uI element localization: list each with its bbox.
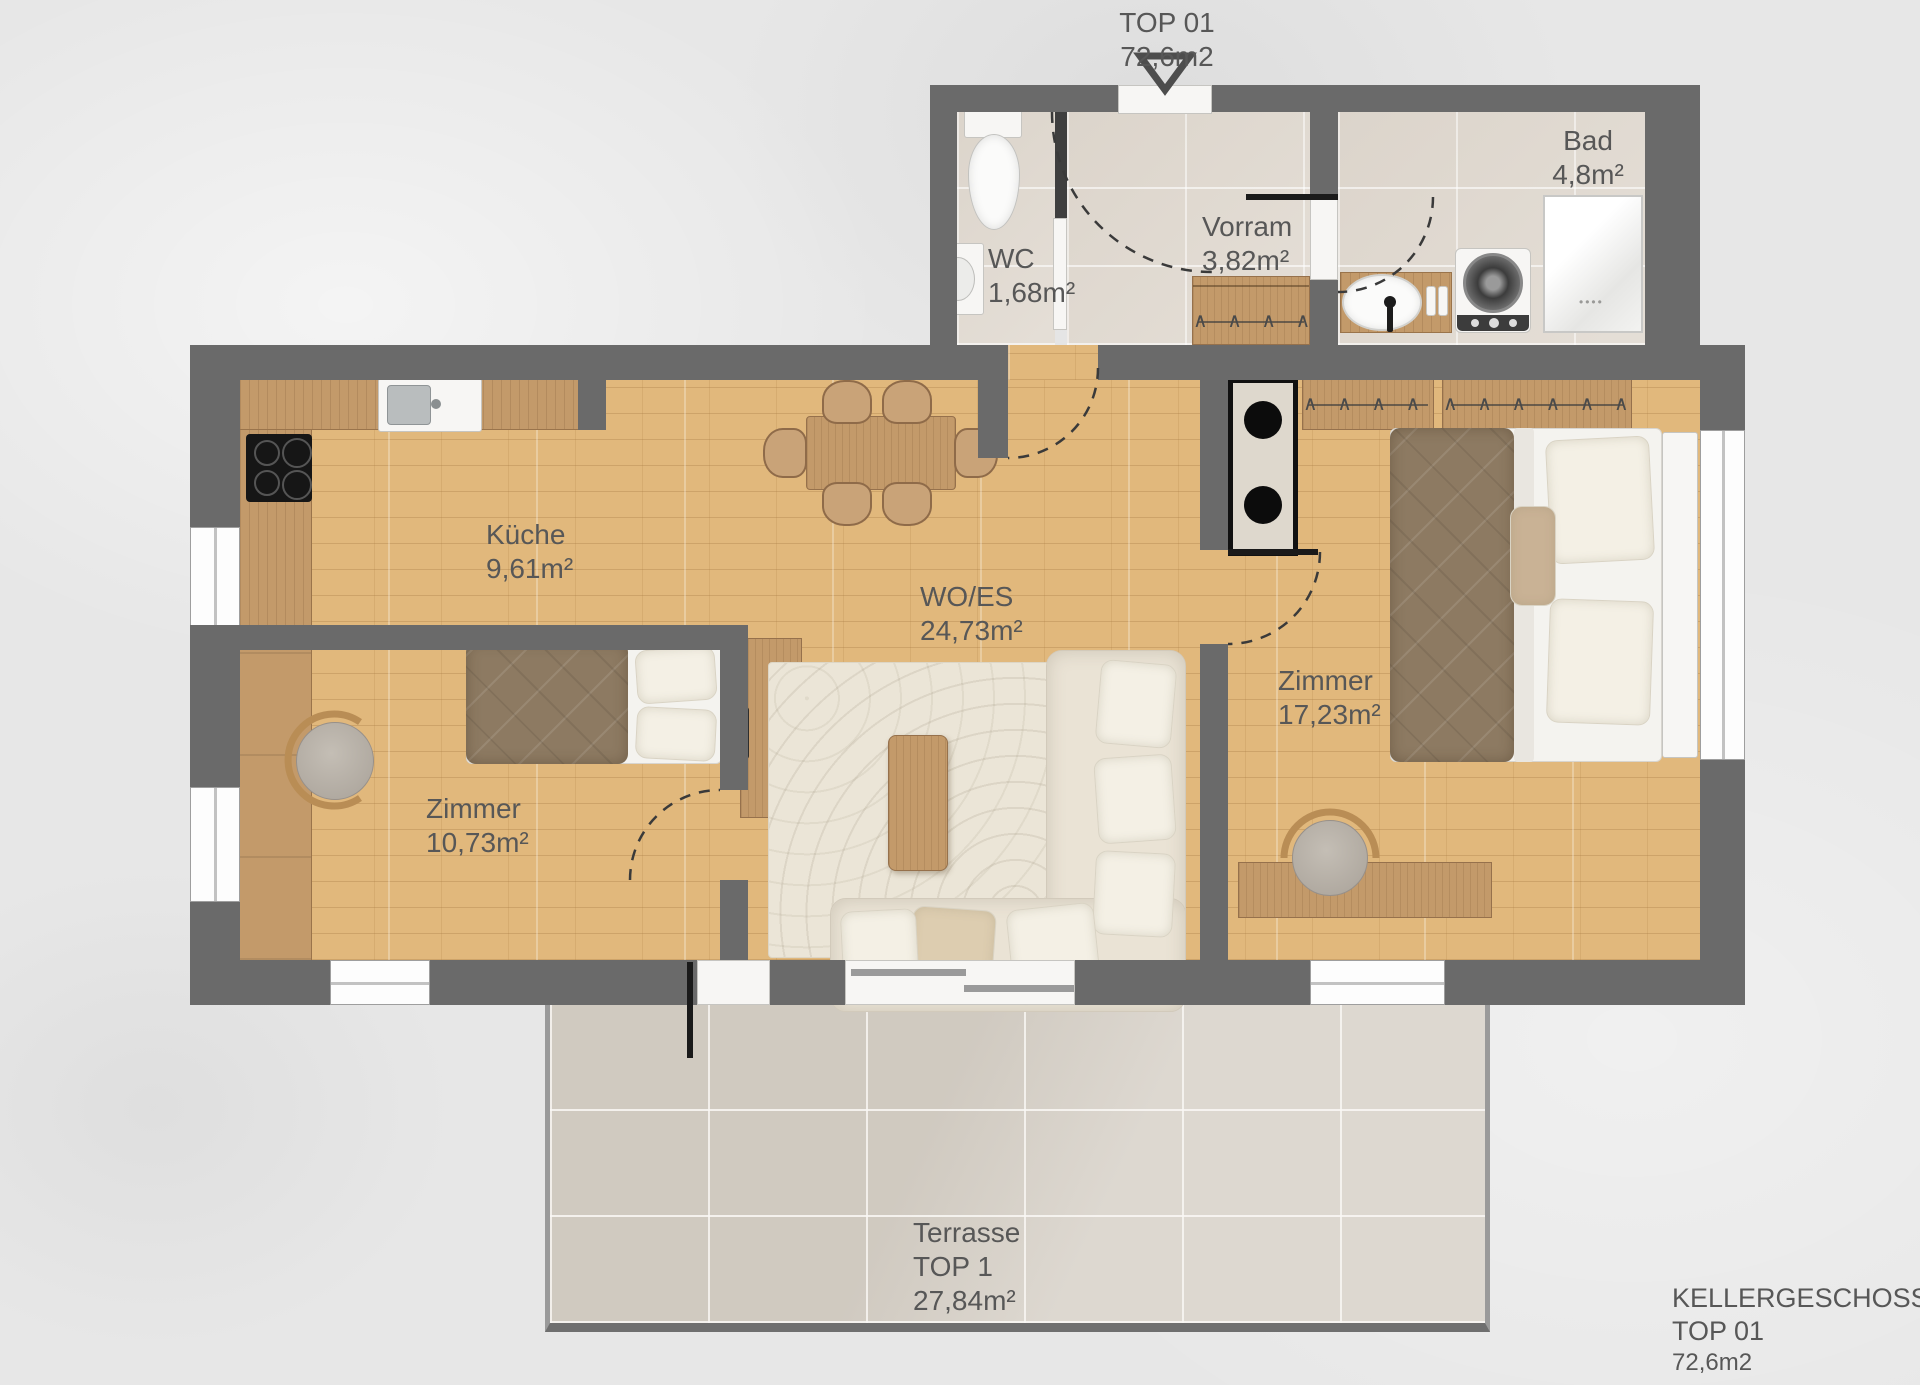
room-area: 17,23m² (1278, 698, 1381, 732)
room-label-terrasse: Terrasse TOP 1 27,84m² (913, 1216, 1020, 1318)
soap-dispenser-icon (1426, 286, 1436, 316)
room-name: WC (988, 242, 1075, 276)
plan-title-project: TOP 01 (1092, 6, 1242, 40)
room-area: 3,82m² (1202, 244, 1292, 278)
room-area: 1,68m² (988, 276, 1075, 310)
washer-panel (1457, 315, 1529, 331)
hanger-icons: ∧ ∧ ∧ ∧ (1193, 311, 1309, 331)
wall-segment (1212, 85, 1700, 112)
washing-machine (1455, 248, 1531, 333)
bedroom1-wardrobe: ∧ ∧ ∧ ∧ ∧ (1302, 378, 1434, 430)
wall-segment (1310, 280, 1338, 345)
coffee-table (888, 735, 948, 871)
plan-title: TOP 01 72,6m2 (1092, 6, 1242, 74)
room-name: Küche (486, 518, 573, 552)
sofa-pillow (1094, 659, 1177, 749)
wall-segment (720, 650, 748, 790)
window (330, 960, 430, 1005)
wall-segment (1445, 960, 1745, 1005)
dining-table (806, 416, 956, 490)
footer-line2: TOP 01 (1672, 1315, 1920, 1348)
room-name: Zimmer (1278, 664, 1381, 698)
bedside-bench (1662, 432, 1698, 758)
room-area: 24,73m² (920, 614, 1023, 648)
wall-segment (930, 85, 957, 345)
floor-plan-canvas: ∧ ∧ ∧ ∧ ∧ ∧ ∧ ∧ ∧ ∧ ∧ ∧ ∧ ∧ ∧ ∧ •••• (0, 0, 1920, 1385)
window (1310, 960, 1445, 1005)
wall-segment (1700, 345, 1745, 430)
room-label-bad: Bad 4,8m² (1528, 124, 1648, 192)
bed-pillow (1546, 598, 1654, 726)
kitchen-sink (378, 378, 482, 432)
room-label-zimmer-klein: Zimmer 10,73m² (426, 792, 529, 860)
dining-chair (763, 428, 807, 478)
dining-chair (822, 482, 872, 526)
wall-segment (190, 960, 330, 1005)
wall-segment (190, 632, 240, 787)
wall-segment (190, 345, 240, 527)
tech-unit (1228, 378, 1298, 556)
bath-sink (1342, 274, 1422, 331)
hanger-icons: ∧ ∧ ∧ ∧ ∧ ∧ ∧ (1443, 394, 1631, 414)
cooktop (246, 434, 312, 502)
faucet-icon (1387, 306, 1393, 332)
wall-segment (430, 960, 697, 1005)
room-label-kueche: Küche 9,61m² (486, 518, 573, 586)
entrance-threshold (1118, 85, 1212, 114)
shower: •••• (1543, 195, 1643, 333)
dining-chair (882, 380, 932, 424)
terrace-sliding-door (845, 960, 1075, 1005)
hanger-icons: ∧ ∧ ∧ ∧ ∧ (1303, 394, 1433, 414)
soap-dispenser-icon (1438, 286, 1448, 316)
wall-segment (190, 345, 978, 380)
wall-segment (720, 880, 748, 960)
bedroom2-duvet (466, 642, 628, 764)
sofa-pillow (1092, 850, 1176, 938)
wall-segment (1310, 112, 1338, 195)
entry-wardrobe-bench: ∧ ∧ ∧ ∧ (1192, 276, 1310, 345)
bedroom2-chair (296, 722, 374, 800)
tech-unit-dial-icon (1244, 401, 1282, 439)
wall-segment (1098, 345, 1200, 380)
window (190, 527, 240, 632)
shower-drain-icon: •••• (1579, 297, 1611, 307)
wall-segment (190, 625, 748, 650)
footer-line3: 72,6m2 (1672, 1348, 1920, 1377)
plan-title-area: 72,6m2 (1092, 40, 1242, 74)
hall-passage-floor (1008, 345, 1098, 380)
wall-segment (578, 380, 606, 430)
wall-segment (1075, 960, 1310, 1005)
bedroom1-wardrobe: ∧ ∧ ∧ ∧ ∧ ∧ ∧ (1442, 378, 1632, 430)
wall-segment (930, 85, 1118, 112)
bed-pillow (1545, 435, 1655, 564)
wall-segment (1200, 345, 1228, 550)
wall-segment (770, 960, 845, 1005)
bed-pillow (635, 706, 718, 762)
sofa-pillow (1093, 753, 1177, 844)
room-unit: TOP 1 (913, 1250, 1020, 1284)
bed-accent-pillow (1510, 506, 1556, 606)
room-name: WO/ES (920, 580, 1023, 614)
window (190, 787, 240, 902)
bedroom2-wardrobe (240, 650, 312, 960)
bedroom1-chair (1292, 820, 1368, 896)
room-label-vorraum: Vorram 3,82m² (1202, 210, 1292, 278)
wall-segment (1055, 112, 1067, 218)
room-area: 9,61m² (486, 552, 573, 586)
dining-chair (822, 380, 872, 424)
room-name: Bad (1528, 124, 1648, 158)
room-area: 27,84m² (913, 1284, 1020, 1318)
wall-segment (978, 345, 1008, 458)
room-name: Terrasse (913, 1216, 1020, 1250)
room-name: Vorram (1202, 210, 1292, 244)
room-name: Zimmer (426, 792, 529, 826)
bedroom1-duvet (1390, 428, 1514, 762)
washer-drum-icon (1463, 253, 1523, 313)
wall-segment (1645, 85, 1700, 345)
footer-line1: KELLERGESCHOSS (1672, 1282, 1920, 1315)
room-label-wc: WC 1,68m² (988, 242, 1075, 310)
room-label-wohnen-essen: WO/ES 24,73m² (920, 580, 1023, 648)
tech-unit-dial-icon (1244, 486, 1282, 524)
room-area: 10,73m² (426, 826, 529, 860)
terrace-door (697, 960, 770, 1005)
room-label-zimmer-gross: Zimmer 17,23m² (1278, 664, 1381, 732)
faucet-icon (431, 399, 441, 409)
footer-title-block: KELLERGESCHOSS TOP 01 72,6m2 (1672, 1282, 1920, 1377)
bed-pillow (634, 645, 718, 704)
wall-segment (1200, 644, 1228, 1005)
dining-chair (882, 482, 932, 526)
window (1700, 430, 1745, 760)
wall-segment (1228, 345, 1700, 380)
door-threshold (1310, 195, 1338, 280)
room-area: 4,8m² (1528, 158, 1648, 192)
